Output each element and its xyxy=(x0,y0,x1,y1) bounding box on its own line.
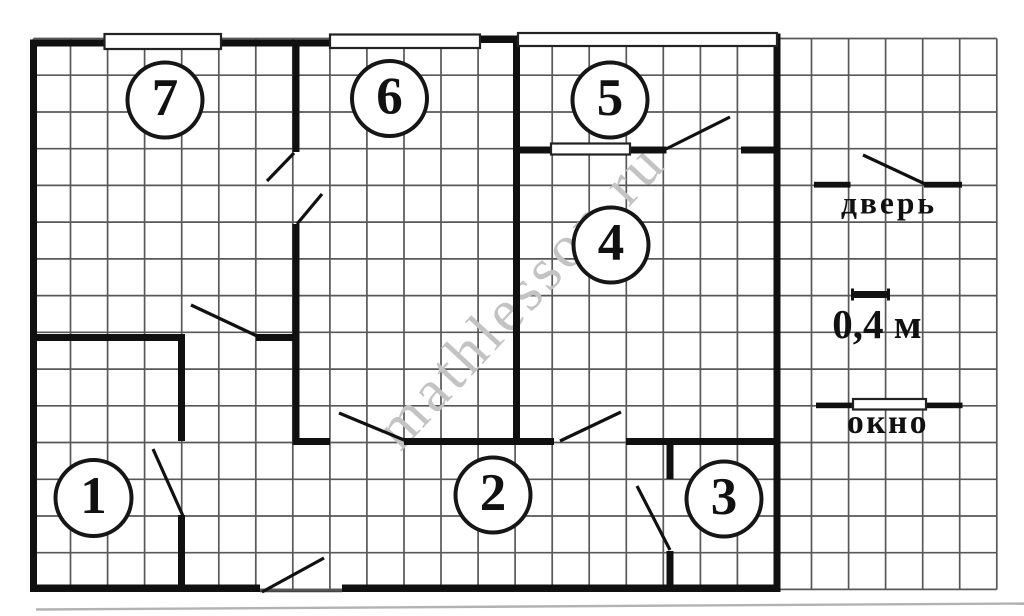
svg-text:6: 6 xyxy=(376,68,403,126)
svg-text:окно: окно xyxy=(847,404,929,441)
svg-text:1: 1 xyxy=(80,467,107,525)
svg-text:дверь: дверь xyxy=(841,186,937,221)
svg-text:0,4 м: 0,4 м xyxy=(832,301,921,347)
svg-text:5: 5 xyxy=(597,69,624,127)
svg-text:3: 3 xyxy=(711,468,738,526)
svg-text:4: 4 xyxy=(598,214,625,272)
svg-text:2: 2 xyxy=(480,464,507,522)
svg-text:7: 7 xyxy=(152,69,179,127)
